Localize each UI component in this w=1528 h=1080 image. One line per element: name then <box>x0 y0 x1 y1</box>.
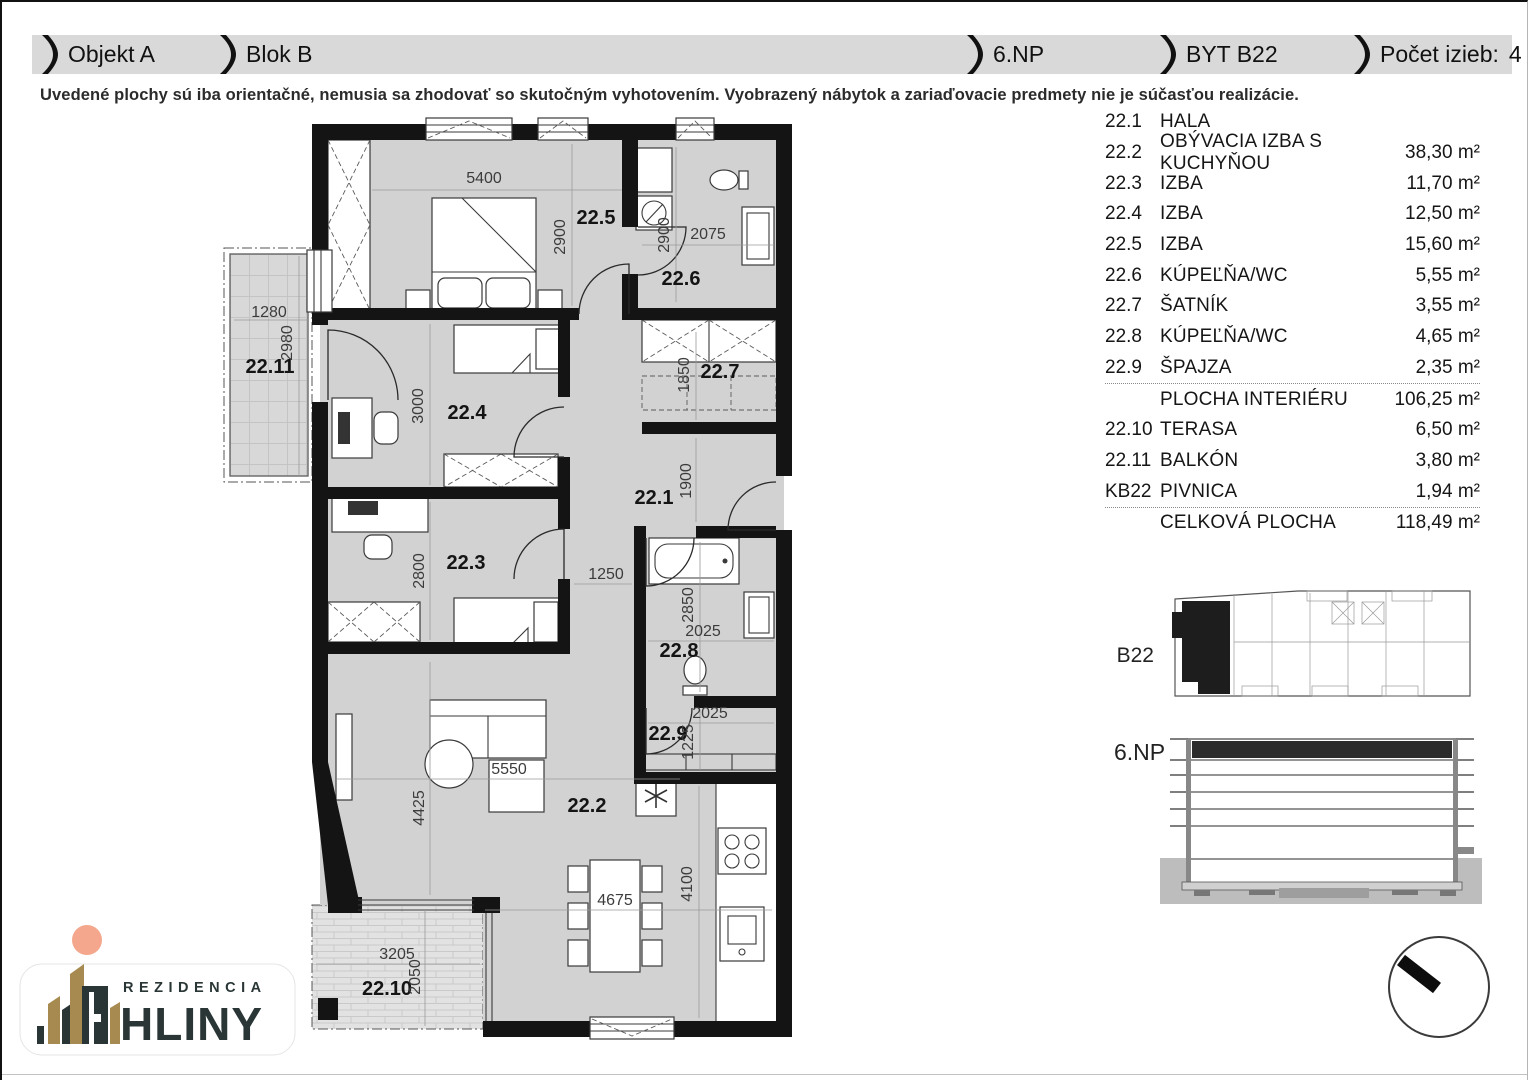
window <box>426 118 512 140</box>
window <box>307 250 332 312</box>
dimension-label: 4675 <box>597 892 633 909</box>
window <box>676 118 714 140</box>
dimension-label: 1250 <box>588 566 624 583</box>
dimension-label: 1280 <box>251 304 287 321</box>
elevation-label: 6.NP <box>1114 739 1165 765</box>
dimension-label: 2075 <box>690 226 726 243</box>
dimension-label: 2900 <box>552 219 569 255</box>
dimension-label: 1900 <box>678 463 695 499</box>
room-label: 22.5 <box>577 207 616 229</box>
floor-highlight <box>1192 741 1452 758</box>
page: Objekt A Blok B 6.NP BYT B22 Počet izieb… <box>0 0 1528 1080</box>
logo-line2: HLINY <box>120 998 263 1050</box>
dimension-label: 5550 <box>491 761 527 778</box>
window <box>538 118 588 140</box>
north-arrow-icon <box>1389 937 1489 1037</box>
keyplan-label: B22 <box>1117 644 1154 667</box>
dimension-label: 2980 <box>279 325 296 361</box>
terrace <box>312 905 483 1029</box>
floor-plan-drawing: 22.122.222.322.422.522.622.722.822.922.1… <box>2 2 1528 1080</box>
room-label: 22.3 <box>447 552 486 574</box>
unit-highlight <box>1182 601 1230 694</box>
building-elevation: 6.NP <box>1114 739 1482 904</box>
dimension-label: 2025 <box>685 623 721 640</box>
room-label: 22.7 <box>701 361 740 383</box>
brand-logo: REZIDENCIA HLINY <box>20 925 295 1055</box>
room-label: 22.10 <box>362 978 412 1000</box>
dimension-label: 4425 <box>411 790 428 826</box>
kitchen-counter <box>716 784 776 1021</box>
dimension-label: 5400 <box>466 170 502 187</box>
dimension-label: 2850 <box>680 587 697 623</box>
dimension-label: 3000 <box>410 388 427 424</box>
room-label: 22.4 <box>448 402 488 424</box>
dimension-label: 1225 <box>680 724 697 760</box>
window <box>590 1017 674 1039</box>
dimension-label: 2050 <box>407 959 424 995</box>
room-label: 22.8 <box>660 640 699 662</box>
room-label: 22.1 <box>635 487 674 509</box>
room-label: 22.2 <box>568 795 607 817</box>
dimension-label: 2800 <box>411 553 428 589</box>
dimension-label: 2900 <box>656 217 673 253</box>
dimension-label: 2025 <box>692 705 728 722</box>
dimension-label: 1850 <box>676 357 693 393</box>
bottom-rule <box>2 1074 1528 1075</box>
key-plan: B22 <box>1117 591 1470 696</box>
room-label: 22.6 <box>662 268 701 290</box>
logo-line1: REZIDENCIA <box>123 980 267 996</box>
logo-dot <box>72 925 102 955</box>
dimension-label: 4100 <box>679 866 696 902</box>
